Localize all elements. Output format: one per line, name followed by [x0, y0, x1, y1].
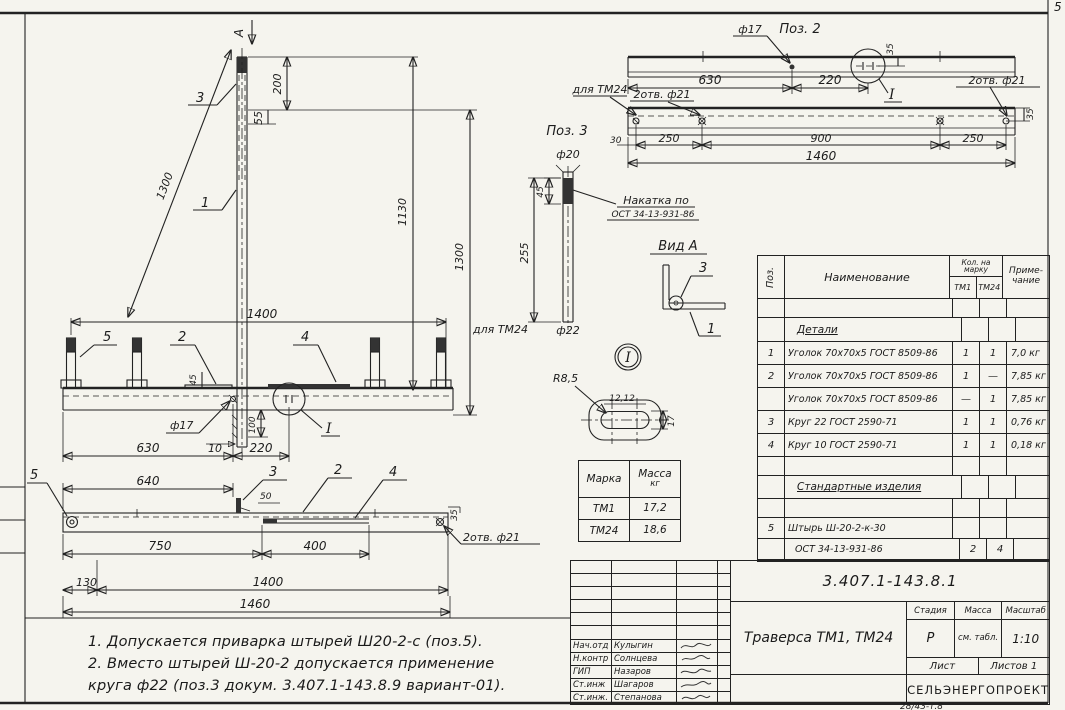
pos3-view: Поз. 3 ф20 Накатка по ОСТ 34-13-931-86 4… — [518, 124, 699, 337]
mass-table: Марка Массакг ТМ1 17,2 ТМ24 18,6 — [578, 460, 681, 542]
mass-row-tm24: ТМ24 18,6 — [579, 520, 680, 541]
front-leader-2: 2 — [178, 330, 186, 345]
pos2-section-mark: I — [888, 87, 895, 103]
mass-col-marka: Марка — [579, 461, 630, 497]
drawing-title: Траверса ТМ1, ТМ24 — [731, 602, 907, 674]
plan-leader-4: 4 — [389, 465, 397, 480]
signature-mark — [679, 680, 713, 690]
scale-label: Масштаб — [1002, 602, 1049, 619]
drawing-notes: 1. Допускается приварка штырей Ш20-2-с (… — [88, 631, 568, 697]
stage-label: Стадия — [907, 602, 955, 619]
signature-mark — [679, 667, 713, 677]
mass-tm24-value: 18,6 — [630, 520, 680, 541]
plan-view: 640 50 5 3 2 4 750 400 130 1400 1460 35 … — [27, 463, 540, 618]
front-dim-1400: 1400 — [247, 307, 278, 321]
section-i-radius: R8,5 — [553, 372, 578, 385]
pos2-dim-630: 630 — [699, 73, 722, 87]
spec-header: Поз. Наименование Кол. намарку ТМ1ТМ24 П… — [758, 256, 1049, 299]
pos2-dim-35-right: 35 — [1026, 108, 1036, 120]
front-leader-5: 5 — [103, 330, 111, 345]
stage-value: Р — [907, 620, 955, 657]
pos2-dim-30: 30 — [610, 136, 622, 146]
vid-a-title: Вид А — [658, 239, 697, 254]
spec-table: Поз. Наименование Кол. намарку ТМ1ТМ24 П… — [757, 255, 1050, 562]
spec-row-4: 3Круг 22 ГОСТ 2590-71110,76 кг — [758, 411, 1049, 434]
plan-leader-5: 5 — [30, 468, 38, 483]
plan-dim-640: 640 — [137, 474, 160, 488]
section-i-dim-17: 17 — [667, 415, 677, 427]
spec-section-details: Детали — [758, 318, 1049, 342]
spec-row-ost: ОСТ 34-13-931-8624 — [758, 539, 1049, 560]
spec-col-pos: Поз. — [766, 266, 777, 287]
signature-row: Ст.инжШагаров — [571, 679, 730, 692]
scale-value: 1:10 — [1002, 620, 1049, 657]
pin-3 — [365, 338, 385, 388]
spec-row-3: Уголок 70х70х5 ГОСТ 8509-86—17,85 кг — [758, 388, 1049, 411]
signature-mark — [679, 641, 713, 651]
sheet-label: Лист — [907, 658, 978, 674]
front-dim-200: 200 — [271, 74, 284, 95]
plan-dim-50: 50 — [260, 492, 272, 502]
mass-tm1-label: ТМ1 — [579, 498, 630, 519]
pos2-dim-35-top: 35 — [886, 43, 896, 55]
front-leader-3: 3 — [196, 91, 204, 106]
signature-row: ГИПНазаров — [571, 666, 730, 679]
front-dim-1130: 1130 — [396, 198, 409, 226]
plan-dim-35: 35 — [450, 509, 460, 521]
mass-col-unit: кг — [650, 480, 660, 489]
front-dim-55: 55 — [252, 111, 265, 125]
spec-row-2: 2Уголок 70х70х5 ГОСТ 8509-861—7,85 кг — [758, 365, 1049, 388]
front-dim-220: 220 — [250, 441, 273, 455]
spec-col-note-2: чание — [1012, 277, 1040, 287]
front-view: А 3 1 1300 200 55 1130 1300 1400 для ТМ2… — [61, 20, 528, 462]
note-line-1: 1. Допускается приварка штырей Ш20-2-с (… — [88, 631, 568, 653]
spec-col-tm1: ТМ1 — [950, 277, 977, 298]
title-block: Нач.отдКулыгин Н.контрСолнцева ГИПНазаро… — [570, 560, 1050, 705]
pin-4 — [431, 338, 451, 388]
plan-dim-1400: 1400 — [253, 575, 284, 589]
drawing-sheet: 5 28/43-т.8 А 3 1 1300 200 55 1130 1300 — [0, 0, 1065, 710]
spec-row-empty — [758, 457, 1049, 476]
front-dim-phi17: ф17 — [170, 419, 193, 432]
pos2-dim-250-right: 250 — [963, 132, 984, 145]
pos2-dim-1460: 1460 — [806, 149, 837, 163]
spec-row-5: 4Круг 10 ГОСТ 2590-71110,18 кг — [758, 434, 1049, 457]
front-dim-45: 45 — [189, 374, 199, 386]
plan-dim-130: 130 — [76, 576, 97, 589]
signature-row: Ст.инж.Степанова — [571, 692, 730, 704]
front-leader-4: 4 — [301, 330, 309, 345]
organization-name: СЕЛЬЭНЕРГОПРОЕКТ — [907, 675, 1049, 704]
title-block-signatures: Нач.отдКулыгин Н.контрСолнцева ГИПНазаро… — [571, 561, 731, 704]
plan-dim-750: 750 — [149, 539, 172, 553]
signature-mark — [679, 654, 713, 664]
front-dim-630: 630 — [137, 441, 160, 455]
sheet-corner-number: 5 — [1054, 0, 1062, 14]
vid-a-view: Вид А 3 1 — [650, 239, 725, 337]
pos2-label-tm24: для ТМ24 — [572, 83, 628, 96]
spec-row-1: 1Уголок 70х70х5 ГОСТ 8509-86117,0 кг — [758, 342, 1049, 365]
plan-leader-2: 2 — [334, 463, 342, 478]
front-label-tm24: для ТМ24 — [472, 323, 528, 336]
pos2-view: Поз. 2 I ф17 35 630 220 2отв. ф21 для ТМ… — [572, 22, 1040, 168]
pos3-knurl-label: Накатка по — [623, 194, 689, 207]
front-dim-1300: 1300 — [453, 243, 466, 271]
plan-leader-3: 3 — [269, 465, 277, 480]
pos2-label-holes-right: 2отв. ф21 — [968, 74, 1025, 87]
front-section-mark: I — [325, 421, 332, 437]
vid-a-leader-3: 3 — [699, 261, 707, 276]
sheets-label: Листов 1 — [979, 658, 1049, 674]
front-dim-diagonal: 1300 — [154, 171, 176, 202]
view-a-arrow-label: А — [232, 29, 246, 38]
pos2-label-holes-left: 2отв. ф21 — [633, 88, 690, 101]
section-i-mark: I — [624, 350, 631, 366]
front-leader-1: 1 — [201, 196, 209, 211]
signature-mark — [679, 693, 713, 703]
spec-section-standard: Стандартные изделия — [758, 476, 1049, 499]
pos3-dim-45: 45 — [536, 186, 546, 198]
front-dim-100: 100 — [248, 416, 258, 433]
pos2-dim-phi17: ф17 — [738, 23, 761, 36]
vid-a-leader-1: 1 — [707, 322, 715, 337]
spec-col-name: Наименование — [785, 256, 950, 298]
spec-col-qty-2: марку — [964, 266, 988, 274]
spec-row-shtyr: 5Штырь Ш-20-2-к-30 — [758, 518, 1049, 539]
mass-tm1-value: 17,2 — [630, 498, 680, 519]
plan-dim-1460: 1460 — [240, 597, 271, 611]
pos3-dim-phi20: ф20 — [556, 148, 579, 161]
pos3-knurl-standard: ОСТ 34-13-931-86 — [611, 210, 694, 220]
pos2-title: Поз. 2 — [779, 22, 820, 37]
pin-1 — [61, 338, 81, 388]
signature-row: Нач.отдКулыгин — [571, 640, 730, 653]
mass-tm24-label: ТМ24 — [579, 520, 630, 541]
mass-row-tm1: ТМ1 17,2 — [579, 498, 680, 520]
mass-value: см. табл. — [955, 620, 1003, 657]
note-line-3: круга ф22 (поз.3 докум. 3.407.1-143.8.9 … — [88, 675, 568, 697]
pos3-dim-phi22: ф22 — [556, 324, 579, 337]
pos3-dim-255: 255 — [518, 243, 531, 264]
plan-dim-400: 400 — [304, 539, 327, 553]
pos2-dim-900: 900 — [811, 132, 832, 145]
section-i-dim-12: 12,12 — [609, 394, 635, 404]
signature-row: Н.контрСолнцева — [571, 653, 730, 666]
mass-label: Масса — [955, 602, 1003, 619]
spec-row-empty — [758, 299, 1049, 318]
plan-label-holes: 2отв. ф21 — [463, 531, 520, 544]
pos2-dim-250-left: 250 — [659, 132, 680, 145]
spec-row-empty — [758, 499, 1049, 518]
pos2-dim-220: 220 — [819, 73, 842, 87]
section-i-detail: I 12,12 R8,5 17 — [553, 344, 677, 444]
spec-col-tm24: ТМ24 — [977, 277, 1003, 298]
pos3-title: Поз. 3 — [546, 124, 587, 139]
pin-2 — [127, 338, 147, 388]
note-line-2: 2. Вместо штырей Ш-20-2 допускается прим… — [88, 653, 568, 675]
doc-number: 3.407.1-143.8.1 — [731, 561, 1049, 602]
